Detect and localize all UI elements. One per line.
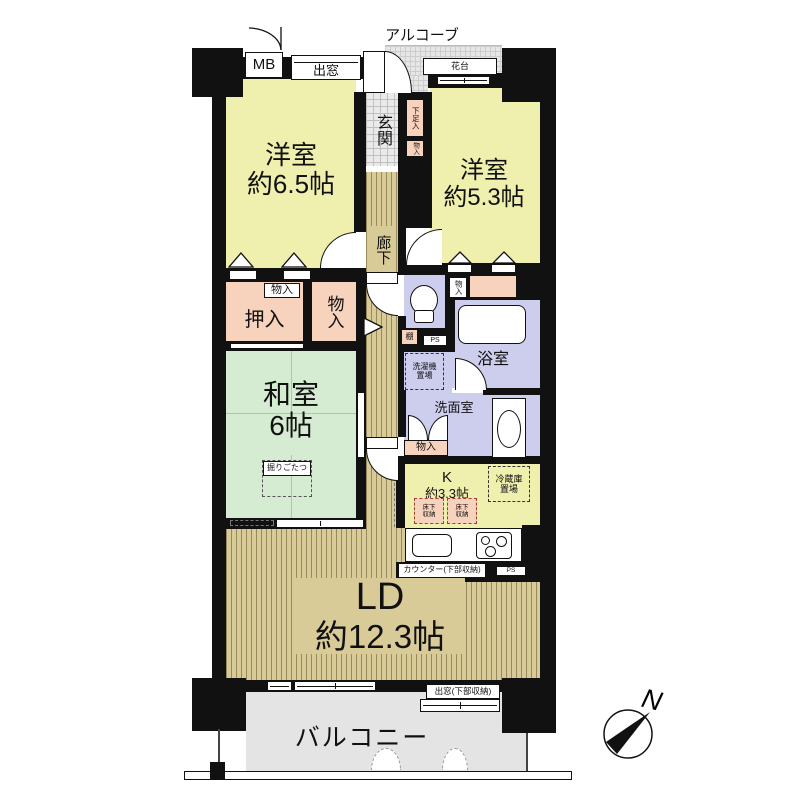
room-name: K [442, 470, 452, 487]
counter-storage-label: カウンター(下部収納) [403, 566, 480, 575]
wall-segment [192, 678, 246, 731]
western-room-2-door-arc [406, 229, 442, 265]
alcove-label: アルコーブ [380, 27, 464, 45]
closet-door-triangle-icon [448, 251, 472, 264]
fridge-label-1: 冷蔵庫 [495, 474, 522, 484]
room-name: 洋室 [460, 158, 508, 185]
closet-small-label: 物入 [271, 284, 293, 296]
toilet-door-leaf [366, 272, 398, 284]
entrance-label: 玄関 [369, 100, 395, 160]
kotatsu-label: 掘りごたつ [267, 464, 307, 473]
balcony-railing-bottom [184, 771, 572, 780]
bathtub-icon [458, 305, 526, 344]
kitchen-sink-icon [412, 534, 452, 557]
fridge-space: 冷蔵庫 置場 [488, 466, 530, 502]
fridge-label-2: 置場 [500, 484, 518, 494]
closet-opening [229, 270, 257, 280]
closet-opening [491, 264, 516, 273]
pipe-space-lower-label: PS [507, 567, 516, 574]
room-size: 約6.5帖 [247, 170, 335, 199]
closet-small: 物入 [264, 283, 300, 298]
entrance-storage: 物入 [406, 140, 424, 157]
underfloor-label-1: 床下 [423, 504, 436, 511]
pipe-space-upper-label: PS [430, 337, 439, 345]
oshiire-label: 押入 [226, 300, 303, 340]
closet-tall-label: 物入 [312, 284, 356, 340]
sliding-door [276, 519, 364, 528]
room-size: 約5.3帖 [443, 185, 524, 212]
bay-window-bottom-labelbox: 出窓(下部収納) [426, 684, 500, 699]
open-boundary [230, 520, 274, 526]
ld-window-small [267, 681, 292, 691]
bay-window-bottom [420, 699, 500, 712]
compass-needle-icon [606, 712, 650, 754]
wall-segment [502, 48, 556, 102]
wall-segment [502, 678, 556, 733]
closet-wr2-body [470, 276, 516, 297]
meter-box: MB [245, 52, 283, 78]
living-dining-label: LD 約12.3帖 [295, 578, 465, 654]
closet-washroom-label: 物入 [416, 442, 436, 453]
closet-washroom: 物入 [404, 440, 448, 456]
japanese-room-label: 和室 6帖 [231, 368, 351, 452]
washer-label-2: 置場 [417, 372, 433, 381]
compass-north-label: N [639, 683, 666, 717]
wall-segment [398, 352, 404, 390]
sliding-door [357, 392, 365, 458]
flower-stand: 花台 [423, 58, 497, 75]
toilet-shelf-label: 棚 [406, 333, 414, 342]
bay-window-bottom-label: 出窓(下部収納) [435, 687, 492, 697]
counter-storage: カウンター(下部収納) [398, 563, 486, 578]
bay-window-top-label: 出窓 [292, 64, 360, 79]
closet-wr2-label: 物入 [454, 280, 462, 295]
wall-segment [540, 95, 556, 690]
pipe-space-upper: PS [423, 335, 447, 346]
ld-window-large [294, 681, 376, 691]
western-room-1-label: 洋室 約6.5帖 [236, 125, 346, 215]
underfloor-storage-2: 床下 収納 [447, 498, 477, 524]
room-name: 洋室 [265, 141, 317, 170]
closet-opening [283, 270, 311, 280]
washer-space: 洗濯機 置場 [405, 353, 444, 390]
kotatsu-label-box: 掘りごたつ [263, 461, 311, 476]
closet-door-triangle-icon [492, 251, 516, 264]
underfloor-label-2: 収納 [423, 511, 436, 518]
entrance-storage-label: 物入 [411, 142, 418, 155]
vanity-sink-icon [497, 410, 521, 448]
washroom-label: 洗面室 [428, 400, 480, 416]
compass: N [588, 682, 688, 782]
meter-box-label: MB [253, 57, 276, 74]
floor-plan: MB 出窓 アルコーブ 花台 下足入 物入 洋室 約6.5帖 洋室 約5.3帖 … [0, 0, 800, 800]
wall-segment [354, 92, 366, 232]
toilet-base-icon [414, 310, 434, 323]
closet-opening [447, 264, 472, 273]
stove-icon [476, 532, 512, 559]
alcove-edge [385, 45, 502, 46]
wall-segment [303, 282, 312, 341]
balcony-railing-right [526, 733, 528, 771]
room-name: LD [356, 576, 405, 619]
closet-door-wedge-icon [363, 317, 383, 337]
flower-stand-label: 花台 [424, 61, 496, 71]
closet-wr2-labelbox: 物入 [449, 277, 467, 298]
underfloor-label-1: 床下 [456, 504, 469, 511]
wall-segment [398, 172, 432, 228]
bay-window-top: 出窓 [291, 55, 361, 80]
room-name: 和室 [263, 379, 319, 410]
room-size: 約12.3帖 [315, 619, 445, 656]
underfloor-storage-1: 床下 収納 [414, 498, 444, 524]
closet-door-triangle-icon [281, 252, 307, 268]
sliding-door [230, 343, 304, 349]
shoe-cabinet-label: 下足入 [411, 107, 419, 130]
corridor-label: 廊下 [369, 226, 395, 274]
underfloor-label-2: 収納 [456, 511, 469, 518]
entrance-door-leaf [363, 51, 385, 93]
balcony-label: バルコニー [298, 723, 426, 753]
shoe-cabinet: 下足入 [406, 99, 424, 137]
pipe-space-lower: PS [496, 566, 526, 576]
wall-segment [483, 388, 540, 395]
room-size: 6帖 [269, 410, 313, 441]
window-under-flower-stand [437, 76, 490, 85]
toilet-shelf: 棚 [402, 330, 417, 344]
closet-door-triangle-icon [228, 252, 254, 268]
balcony-post [210, 762, 225, 779]
wall-segment [398, 390, 406, 437]
western-room-2-label: 洋室 約5.3帖 [428, 145, 540, 225]
hall-door-leaf [366, 437, 398, 449]
wall-segment [212, 78, 226, 682]
mb-door-arc [248, 27, 282, 51]
